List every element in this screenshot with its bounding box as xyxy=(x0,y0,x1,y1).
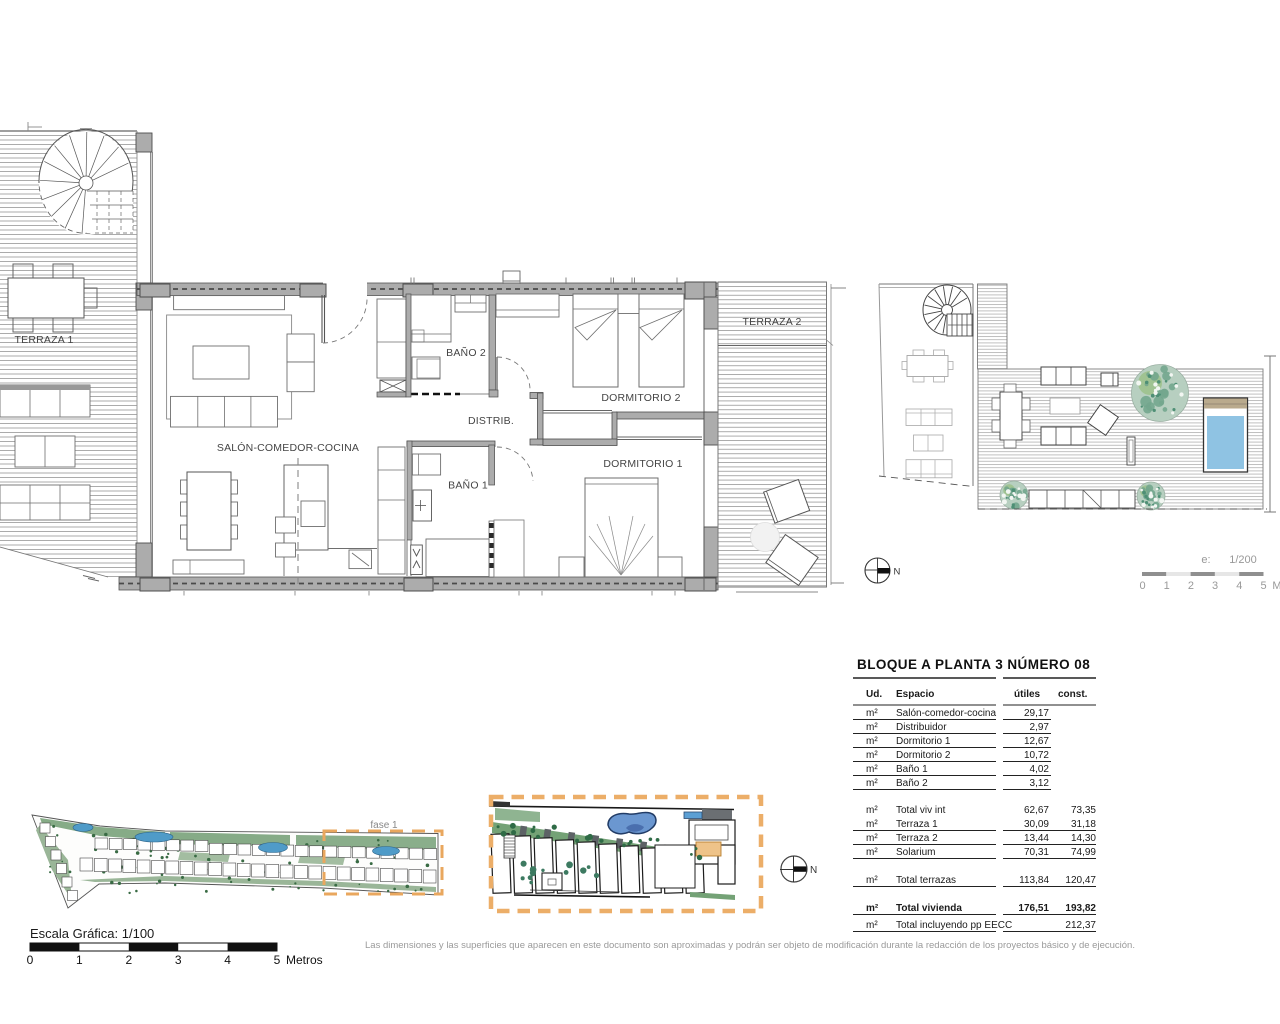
svg-text:BLOQUE A PLANTA 3 NÚMERO 08: BLOQUE A PLANTA 3 NÚMERO 08 xyxy=(857,657,1090,672)
svg-text:N: N xyxy=(810,865,817,876)
svg-text:120,47: 120,47 xyxy=(1065,875,1096,886)
svg-text:M: M xyxy=(1272,580,1280,592)
svg-text:4: 4 xyxy=(224,953,231,967)
svg-text:DORMITORIO 2: DORMITORIO 2 xyxy=(601,392,680,404)
svg-text:m²: m² xyxy=(866,778,878,789)
svg-text:BAÑO 2: BAÑO 2 xyxy=(446,346,486,359)
svg-text:Terraza 1: Terraza 1 xyxy=(896,819,938,830)
svg-text:62,67: 62,67 xyxy=(1024,805,1049,816)
svg-text:Escala Gráfica: 1/100: Escala Gráfica: 1/100 xyxy=(30,926,154,941)
svg-text:DISTRIB.: DISTRIB. xyxy=(468,415,514,427)
svg-text:4,02: 4,02 xyxy=(1030,764,1050,775)
svg-text:Total terrazas: Total terrazas xyxy=(896,875,956,886)
svg-text:10,72: 10,72 xyxy=(1024,750,1049,761)
svg-text:70,31: 70,31 xyxy=(1024,847,1049,858)
svg-text:TERRAZA 2: TERRAZA 2 xyxy=(743,316,802,328)
svg-text:Dormitorio 2: Dormitorio 2 xyxy=(896,750,951,761)
svg-text:2,97: 2,97 xyxy=(1030,722,1050,733)
svg-text:3: 3 xyxy=(175,953,182,967)
svg-text:31,18: 31,18 xyxy=(1071,819,1096,830)
svg-text:fase 1: fase 1 xyxy=(370,820,398,831)
svg-text:5: 5 xyxy=(1260,580,1266,592)
svg-text:Total viv int: Total viv int xyxy=(896,805,946,816)
svg-text:4: 4 xyxy=(1236,580,1242,592)
svg-text:e:: e: xyxy=(1201,554,1210,566)
svg-text:1: 1 xyxy=(76,953,83,967)
svg-text:1/200: 1/200 xyxy=(1229,554,1257,566)
svg-text:m²: m² xyxy=(866,847,878,858)
svg-text:m²: m² xyxy=(866,708,878,719)
svg-text:const.: const. xyxy=(1058,689,1088,700)
svg-text:Solarium: Solarium xyxy=(896,847,935,858)
svg-text:2: 2 xyxy=(125,953,132,967)
svg-text:Salón-comedor-cocina: Salón-comedor-cocina xyxy=(896,708,996,719)
svg-text:m²: m² xyxy=(866,722,878,733)
svg-text:Baño 1: Baño 1 xyxy=(896,764,928,775)
svg-text:Metros: Metros xyxy=(286,953,323,967)
svg-text:5: 5 xyxy=(274,953,281,967)
svg-text:74,99: 74,99 xyxy=(1071,847,1096,858)
svg-text:176,51: 176,51 xyxy=(1018,903,1049,914)
svg-text:0: 0 xyxy=(1139,580,1145,592)
svg-text:m²: m² xyxy=(866,819,878,830)
svg-text:Espacio: Espacio xyxy=(896,689,934,700)
svg-text:m²: m² xyxy=(866,833,878,844)
svg-text:Las dimensiones y las superfic: Las dimensiones y las superficies que ap… xyxy=(365,940,1135,951)
svg-text:14,30: 14,30 xyxy=(1071,833,1096,844)
svg-text:12,67: 12,67 xyxy=(1024,736,1049,747)
svg-text:193,82: 193,82 xyxy=(1065,903,1096,914)
svg-text:Baño 2: Baño 2 xyxy=(896,778,928,789)
svg-text:Terraza 2: Terraza 2 xyxy=(896,833,938,844)
svg-text:3: 3 xyxy=(1212,580,1218,592)
svg-text:TERRAZA 1: TERRAZA 1 xyxy=(15,334,74,346)
svg-text:0: 0 xyxy=(27,953,34,967)
svg-text:30,09: 30,09 xyxy=(1024,819,1049,830)
svg-text:SALÓN-COMEDOR-COCINA: SALÓN-COMEDOR-COCINA xyxy=(217,441,359,454)
svg-text:BAÑO 1: BAÑO 1 xyxy=(448,479,488,492)
svg-text:Distribuidor: Distribuidor xyxy=(896,722,947,733)
svg-text:Total vivienda: Total vivienda xyxy=(896,903,962,914)
svg-text:m²: m² xyxy=(866,805,878,816)
svg-text:Total incluyendo pp EECC: Total incluyendo pp EECC xyxy=(896,920,1012,931)
svg-text:212,37: 212,37 xyxy=(1065,920,1096,931)
svg-text:m²: m² xyxy=(866,750,878,761)
svg-text:113,84: 113,84 xyxy=(1019,875,1049,886)
svg-text:m²: m² xyxy=(866,736,878,747)
svg-text:1: 1 xyxy=(1164,580,1170,592)
svg-text:2: 2 xyxy=(1188,580,1194,592)
svg-text:29,17: 29,17 xyxy=(1024,708,1049,719)
svg-text:útiles: útiles xyxy=(1014,689,1041,700)
svg-text:3,12: 3,12 xyxy=(1030,778,1050,789)
svg-text:13,44: 13,44 xyxy=(1024,833,1049,844)
svg-text:Ud.: Ud. xyxy=(866,689,882,700)
svg-text:N: N xyxy=(894,567,901,578)
svg-text:Dormitorio 1: Dormitorio 1 xyxy=(896,736,951,747)
svg-text:DORMITORIO 1: DORMITORIO 1 xyxy=(603,458,682,470)
svg-text:m²: m² xyxy=(866,875,878,886)
svg-text:73,35: 73,35 xyxy=(1071,805,1096,816)
svg-text:m²: m² xyxy=(866,920,878,931)
svg-text:m²: m² xyxy=(866,764,878,775)
svg-text:m²: m² xyxy=(866,903,879,914)
